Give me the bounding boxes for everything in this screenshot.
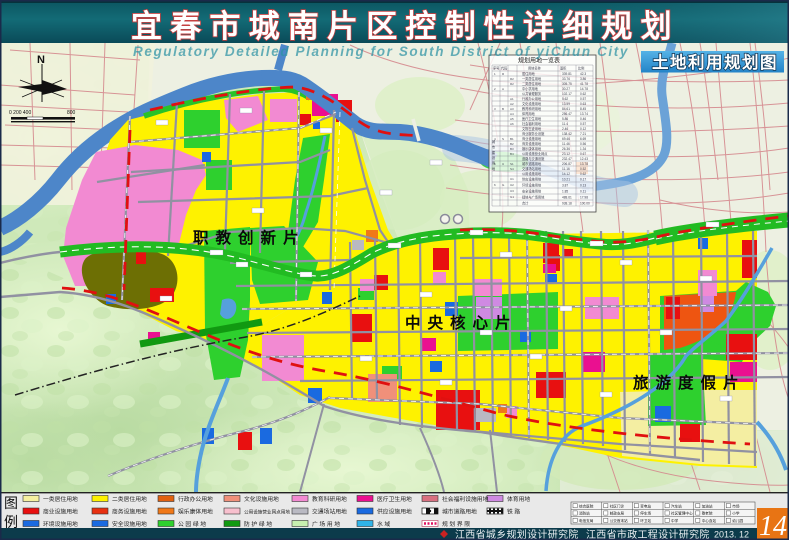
svg-text:B2: B2 bbox=[510, 142, 514, 146]
svg-text:商业设施用地: 商业设施用地 bbox=[522, 136, 542, 141]
svg-text:二类居住用地: 二类居住用地 bbox=[112, 495, 147, 503]
svg-text:商业服务业设施: 商业服务业设施 bbox=[522, 131, 545, 136]
svg-text:0 200 400: 0 200 400 bbox=[9, 110, 31, 116]
svg-text:2013. 12: 2013. 12 bbox=[714, 530, 749, 540]
svg-text:11.4: 11.4 bbox=[562, 122, 568, 126]
svg-text:江西省市政工程设计研究院: 江西省市政工程设计研究院 bbox=[586, 528, 710, 540]
svg-text:居住用地: 居住用地 bbox=[522, 71, 536, 76]
svg-text:电信支局: 电信支局 bbox=[579, 518, 594, 523]
svg-text:安全设施用地: 安全设施用地 bbox=[112, 520, 147, 528]
svg-text:A4: A4 bbox=[510, 112, 514, 116]
svg-text:14: 14 bbox=[759, 511, 787, 540]
svg-text:0.63: 0.63 bbox=[580, 102, 586, 106]
svg-text:10.21: 10.21 bbox=[562, 178, 570, 182]
svg-text:交通场站用地: 交通场站用地 bbox=[522, 166, 542, 171]
svg-text:3.87: 3.87 bbox=[562, 184, 568, 188]
svg-text:合计: 合计 bbox=[522, 201, 529, 206]
svg-text:用地名称: 用地名称 bbox=[528, 66, 542, 71]
svg-text:206.87: 206.87 bbox=[562, 162, 572, 166]
svg-text:B1: B1 bbox=[510, 137, 514, 141]
svg-text:69.46: 69.46 bbox=[562, 137, 570, 141]
svg-text:S: S bbox=[502, 137, 504, 141]
svg-text:800: 800 bbox=[67, 110, 76, 116]
svg-text:14.12: 14.12 bbox=[562, 172, 570, 176]
svg-text:市场: 市场 bbox=[732, 503, 740, 508]
svg-text:30.27: 30.27 bbox=[562, 87, 570, 91]
svg-text:商务设施用地: 商务设施用地 bbox=[522, 141, 542, 146]
svg-text:娱乐康体用地: 娱乐康体用地 bbox=[178, 508, 213, 516]
svg-text:13.74: 13.74 bbox=[580, 112, 588, 116]
svg-text:0.17: 0.17 bbox=[580, 178, 586, 182]
svg-text:305.75: 305.75 bbox=[562, 82, 572, 86]
svg-text:宜春市城南片区控制性详细规划: 宜春市城南片区控制性详细规划 bbox=[131, 9, 680, 44]
svg-text:84.61: 84.61 bbox=[562, 107, 570, 111]
svg-text:公 园 绿 地: 公 园 绿 地 bbox=[178, 520, 206, 528]
svg-text:江西省城乡规划设计研究院: 江西省城乡规划设计研究院 bbox=[455, 528, 579, 540]
svg-text:B3: B3 bbox=[510, 147, 514, 151]
svg-text:邮政支局: 邮政支局 bbox=[610, 511, 625, 516]
svg-text:11.16: 11.16 bbox=[562, 167, 570, 171]
svg-text:交通场站用地: 交通场站用地 bbox=[312, 508, 347, 516]
svg-text:102.17: 102.17 bbox=[562, 92, 572, 96]
svg-text:公用设施营业网点: 公用设施营业网点 bbox=[522, 151, 548, 156]
svg-text:G1: G1 bbox=[510, 195, 514, 199]
svg-text:商务设施用地: 商务设施用地 bbox=[112, 508, 147, 516]
svg-text:0.12: 0.12 bbox=[580, 127, 586, 131]
svg-text:旅游度假片: 旅游度假片 bbox=[633, 373, 746, 392]
svg-text:0.13: 0.13 bbox=[580, 184, 586, 188]
svg-text:0.62: 0.62 bbox=[580, 92, 586, 96]
svg-text:中心血站: 中心血站 bbox=[702, 518, 717, 523]
svg-text:1.34: 1.34 bbox=[580, 147, 586, 151]
svg-text:U1: U1 bbox=[510, 177, 514, 181]
svg-text:U2: U2 bbox=[510, 183, 514, 187]
svg-text:13.78: 13.78 bbox=[580, 162, 588, 166]
svg-text:5.62: 5.62 bbox=[562, 97, 568, 101]
svg-text:B4: B4 bbox=[510, 152, 514, 156]
svg-text:城市建设用地: 城市建设用地 bbox=[491, 139, 495, 172]
svg-text:体育用地: 体育用地 bbox=[522, 111, 536, 116]
svg-text:停车场: 停车场 bbox=[640, 511, 651, 516]
svg-text:中学: 中学 bbox=[671, 518, 679, 523]
svg-text:医疗卫生用地: 医疗卫生用地 bbox=[377, 495, 412, 503]
svg-text:商业设施用地: 商业设施用地 bbox=[43, 508, 78, 516]
svg-text:道路与交通设施: 道路与交通设施 bbox=[522, 156, 545, 161]
svg-text:社区管理中心: 社区管理中心 bbox=[671, 511, 693, 516]
svg-text:13.59: 13.59 bbox=[562, 102, 570, 106]
svg-text:23.12: 23.12 bbox=[562, 152, 570, 156]
svg-text:绿地与广场用地: 绿地与广场用地 bbox=[522, 195, 545, 200]
svg-text:文化设施用地: 文化设施用地 bbox=[244, 495, 279, 503]
svg-text:公共管理服务: 公共管理服务 bbox=[522, 91, 542, 96]
svg-text:序号: 序号 bbox=[493, 66, 499, 71]
svg-text:加油站: 加油站 bbox=[702, 503, 713, 508]
svg-text:41.78: 41.78 bbox=[580, 82, 588, 86]
svg-text:中央核心片: 中央核心片 bbox=[405, 313, 518, 332]
svg-text:Regulatory Detailed Planning f: Regulatory Detailed Planning for South D… bbox=[133, 44, 629, 59]
svg-text:A1: A1 bbox=[510, 97, 514, 101]
svg-text:0.52: 0.52 bbox=[580, 167, 586, 171]
svg-text:A: A bbox=[502, 87, 504, 91]
svg-text:敬老院: 敬老院 bbox=[702, 511, 713, 516]
svg-text:938.18: 938.18 bbox=[562, 202, 572, 206]
svg-text:1.85: 1.85 bbox=[562, 190, 568, 194]
svg-text:6.69: 6.69 bbox=[580, 137, 586, 141]
svg-text:5.86: 5.86 bbox=[562, 117, 568, 121]
svg-text:广 场 用 地: 广 场 用 地 bbox=[312, 520, 340, 528]
svg-text:变电站: 变电站 bbox=[640, 503, 651, 508]
svg-text:U3: U3 bbox=[510, 189, 514, 193]
svg-text:100.00: 100.00 bbox=[580, 202, 590, 206]
svg-text:城市道路用地: 城市道路用地 bbox=[442, 508, 477, 516]
svg-text:488.61: 488.61 bbox=[562, 196, 572, 200]
svg-text:环卫站: 环卫站 bbox=[640, 518, 651, 523]
svg-text:小学: 小学 bbox=[732, 511, 740, 516]
svg-text:一类居住用地: 一类居住用地 bbox=[522, 76, 542, 81]
svg-text:安全设施用地: 安全设施用地 bbox=[522, 189, 542, 194]
svg-text:消防站: 消防站 bbox=[579, 511, 590, 516]
svg-text:体育用地: 体育用地 bbox=[507, 495, 530, 503]
svg-text:教育科研用地: 教育科研用地 bbox=[312, 495, 347, 503]
svg-text:文物古迹用地: 文物古迹用地 bbox=[522, 126, 542, 131]
svg-text:土地利用规划图: 土地利用规划图 bbox=[652, 52, 778, 72]
svg-text:0.46: 0.46 bbox=[580, 117, 586, 121]
svg-text:职教创新片: 职教创新片 bbox=[193, 228, 306, 247]
svg-text:0.57: 0.57 bbox=[580, 97, 586, 101]
svg-text:铁 路: 铁 路 bbox=[507, 508, 520, 516]
svg-text:环境设施用地: 环境设施用地 bbox=[43, 520, 78, 528]
svg-text:供应设施用地: 供应设施用地 bbox=[377, 508, 412, 516]
svg-text:规 划 界 限: 规 划 界 限 bbox=[442, 520, 470, 528]
svg-text:城市道路用地: 城市道路用地 bbox=[522, 161, 542, 166]
svg-text:A6: A6 bbox=[510, 122, 514, 126]
svg-text:3.86: 3.86 bbox=[580, 77, 586, 81]
svg-text:R2: R2 bbox=[510, 82, 514, 86]
svg-text:U: U bbox=[502, 162, 504, 166]
svg-text:比例: 比例 bbox=[578, 66, 584, 71]
svg-text:42.3: 42.3 bbox=[580, 72, 586, 76]
svg-text:防 护 绿 地: 防 护 绿 地 bbox=[244, 520, 272, 528]
svg-text:社会福利设施用地: 社会福利设施用地 bbox=[442, 495, 489, 503]
svg-text:幼儿园: 幼儿园 bbox=[732, 518, 743, 523]
svg-text:行政办公用地: 行政办公用地 bbox=[178, 495, 213, 503]
svg-text:水 域: 水 域 bbox=[377, 520, 390, 528]
svg-text:0.62: 0.62 bbox=[580, 172, 586, 176]
svg-text:环境设施用地: 环境设施用地 bbox=[522, 183, 542, 188]
svg-text:8.45: 8.45 bbox=[580, 107, 586, 111]
svg-text:代码: 代码 bbox=[501, 66, 507, 71]
svg-text:一类居住用地: 一类居住用地 bbox=[43, 495, 78, 503]
svg-text:二类居住用地: 二类居住用地 bbox=[522, 81, 542, 86]
svg-text:文化设施用地: 文化设施用地 bbox=[522, 101, 542, 106]
svg-text:0.56: 0.56 bbox=[580, 142, 586, 146]
svg-text:26.36: 26.36 bbox=[562, 147, 570, 151]
svg-text:医疗卫生用地: 医疗卫生用地 bbox=[522, 116, 542, 121]
svg-text:A2: A2 bbox=[510, 102, 514, 106]
svg-text:社会福利用地: 社会福利用地 bbox=[522, 121, 542, 126]
svg-text:17.98: 17.98 bbox=[580, 196, 588, 200]
svg-text:面积: 面积 bbox=[560, 66, 567, 71]
svg-text:社区门诊: 社区门诊 bbox=[610, 503, 625, 508]
svg-text:公用设施用地: 公用设施用地 bbox=[522, 171, 542, 176]
svg-text:中小学用地: 中小学用地 bbox=[522, 86, 539, 91]
svg-text:339.81: 339.81 bbox=[562, 72, 572, 76]
svg-text:2.46: 2.46 bbox=[562, 127, 568, 131]
svg-text:14.78: 14.78 bbox=[580, 87, 588, 91]
svg-text:S1: S1 bbox=[510, 162, 514, 166]
svg-text:A5: A5 bbox=[510, 117, 514, 121]
svg-text:S4: S4 bbox=[510, 167, 514, 171]
svg-text:0.67: 0.67 bbox=[580, 152, 586, 156]
svg-text:7.21: 7.21 bbox=[580, 132, 586, 136]
svg-text:图: 图 bbox=[4, 495, 18, 511]
svg-text:138.42: 138.42 bbox=[562, 132, 572, 136]
svg-text:娱乐康体用地: 娱乐康体用地 bbox=[522, 146, 542, 151]
svg-text:12.43: 12.43 bbox=[580, 157, 588, 161]
svg-text:公交首末站: 公交首末站 bbox=[610, 518, 628, 523]
svg-text:R2: R2 bbox=[510, 77, 514, 81]
svg-text:N: N bbox=[37, 54, 45, 66]
svg-text:256.47: 256.47 bbox=[562, 112, 572, 116]
svg-text:A3: A3 bbox=[510, 107, 514, 111]
svg-text:教育科研用地: 教育科研用地 bbox=[522, 106, 542, 111]
svg-text:0.57: 0.57 bbox=[580, 122, 586, 126]
svg-text:33.76: 33.76 bbox=[562, 77, 570, 81]
svg-text:11.46: 11.46 bbox=[562, 142, 570, 146]
svg-text:B: B bbox=[502, 107, 504, 111]
svg-text:公用设施营业网点用地: 公用设施营业网点用地 bbox=[244, 509, 290, 516]
svg-text:例: 例 bbox=[4, 514, 18, 530]
svg-text:汽车站: 汽车站 bbox=[671, 503, 682, 508]
svg-text:232.47: 232.47 bbox=[562, 157, 572, 161]
svg-text:0.11: 0.11 bbox=[580, 190, 586, 194]
svg-text:供应设施用地: 供应设施用地 bbox=[522, 177, 542, 182]
svg-text:综合医院: 综合医院 bbox=[579, 503, 594, 508]
svg-text:行政办公用地: 行政办公用地 bbox=[522, 96, 542, 101]
